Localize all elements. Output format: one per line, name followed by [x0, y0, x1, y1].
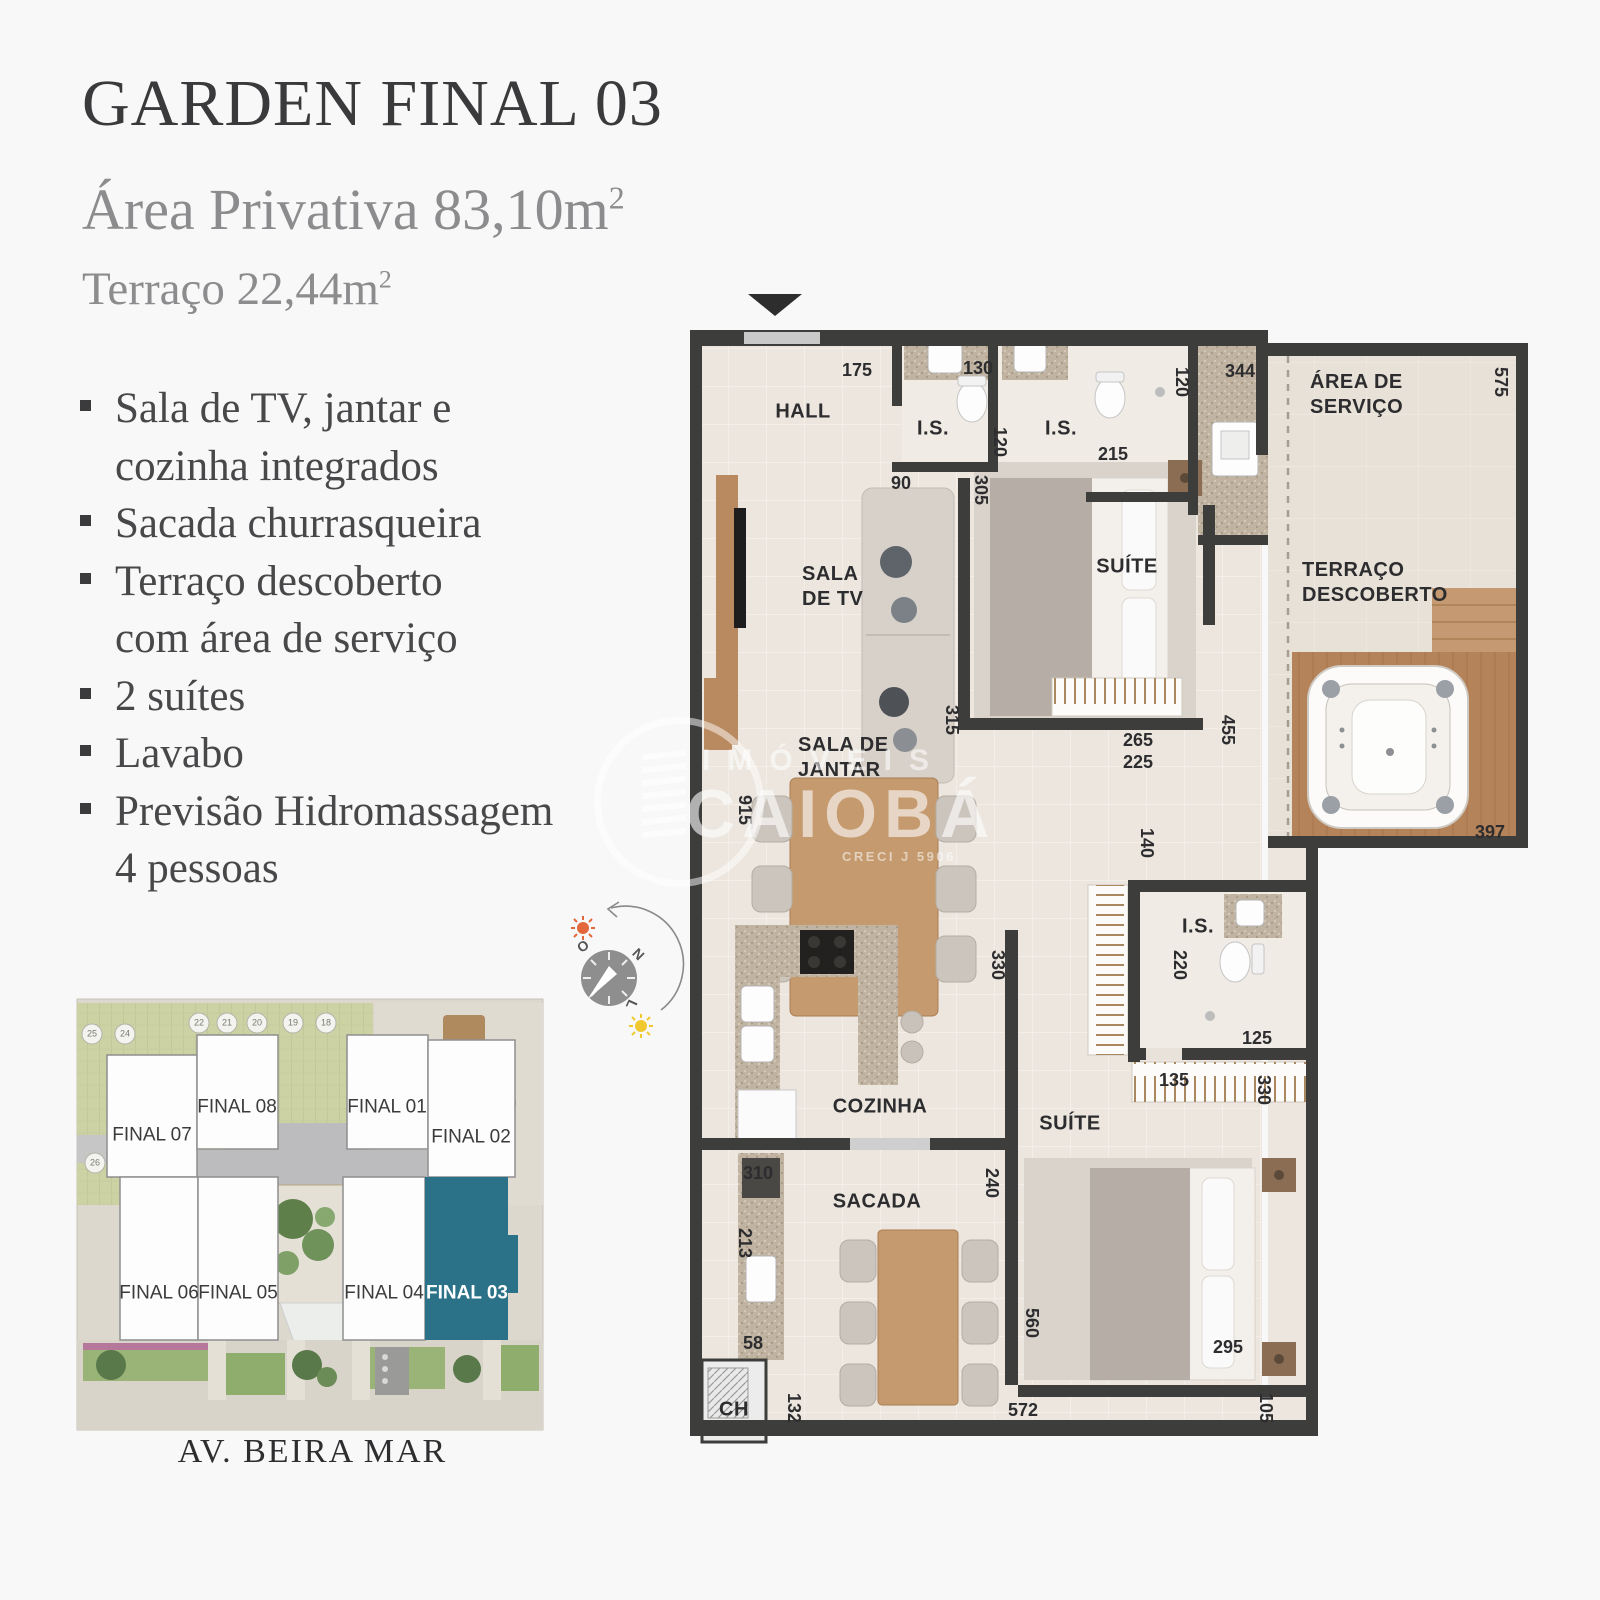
room-label-is1: I.S. — [917, 418, 949, 441]
parking-spot: 24 — [115, 1024, 136, 1045]
dim-label: 330 — [1255, 1075, 1273, 1105]
bullet-icon — [80, 745, 91, 756]
site-unit-final-06: FINAL 06 — [119, 1284, 199, 1303]
site-unit-final-05: FINAL 05 — [198, 1284, 278, 1303]
dim-label: 90 — [891, 474, 911, 492]
avenue-label: AV. BEIRA MAR — [75, 1435, 550, 1469]
dim-label: 125 — [1242, 1029, 1272, 1047]
sunset-sun-icon — [571, 916, 595, 940]
feature-text: cozinha integrados — [115, 438, 439, 496]
feature-text: Sala de TV, jantar e — [115, 380, 451, 438]
feature-text: Previsão Hidromassagem — [115, 783, 553, 841]
feature-text: Sacada churrasqueira — [115, 495, 482, 553]
site-plan-drawing — [75, 995, 550, 1440]
dim-label: 175 — [842, 361, 872, 379]
bullet-icon — [80, 803, 91, 814]
dim-label: 135 — [1159, 1071, 1189, 1089]
floor-plan-drawing — [690, 290, 1535, 1455]
private-area-sup: 2 — [609, 181, 625, 216]
room-label-cozinha: COZINHA — [833, 1096, 928, 1119]
compass-west: O — [574, 936, 592, 955]
dim-label: 344 — [1225, 362, 1255, 380]
parking-spot: 20 — [247, 1013, 268, 1034]
site-unit-final-03: FINAL 03 — [426, 1284, 508, 1303]
page: GARDEN FINAL 03 Área Privativa 83,10m2 T… — [0, 0, 1600, 1600]
dim-label: 915 — [736, 795, 754, 825]
dim-label: 575 — [1492, 367, 1510, 397]
feature-text: Terraço descoberto — [115, 553, 443, 611]
sunrise-sun-icon — [629, 1014, 653, 1038]
feature-item: Terraço descoberto — [78, 553, 678, 611]
room-label-is2: I.S. — [1045, 418, 1077, 441]
dim-label: 560 — [1023, 1308, 1041, 1338]
feature-text: com área de serviço — [115, 610, 458, 668]
dim-label: 305 — [972, 475, 990, 505]
feature-item: Previsão Hidromassagem — [78, 783, 678, 841]
feature-list: Sala de TV, jantar e cozinha integrados … — [78, 380, 678, 898]
parking-spot: 18 — [316, 1013, 337, 1034]
site-unit-final-01: FINAL 01 — [347, 1098, 427, 1117]
bullet-icon — [80, 573, 91, 584]
page-title: GARDEN FINAL 03 — [82, 68, 663, 141]
dim-label: 120 — [1173, 367, 1191, 397]
dim-label: 455 — [1219, 715, 1237, 745]
dim-label: 295 — [1213, 1338, 1243, 1356]
feature-item-cont: com área de serviço — [78, 610, 678, 668]
dim-label: 240 — [983, 1168, 1001, 1198]
dim-label: 132 — [785, 1393, 803, 1423]
dim-label: 330 — [989, 950, 1007, 980]
room-label-suite1: SUÍTE — [1096, 556, 1157, 579]
parking-spot: 26 — [85, 1153, 106, 1174]
feature-item: Sala de TV, jantar e — [78, 380, 678, 438]
feature-text: 2 suítes — [115, 668, 245, 726]
dim-label: 315 — [943, 705, 961, 735]
dim-label: 58 — [743, 1334, 763, 1352]
parking-spot: 22 — [189, 1013, 210, 1034]
site-unit-final-08: FINAL 08 — [197, 1098, 277, 1117]
room-label-sacada: SACADA — [833, 1191, 922, 1214]
room-label-is3: I.S. — [1182, 916, 1214, 939]
dim-label: 265 — [1123, 731, 1153, 749]
dim-label: 310 — [743, 1164, 773, 1182]
bullet-icon — [80, 400, 91, 411]
dim-label: 220 — [1171, 950, 1189, 980]
room-label-sala-jantar: SALA DE JANTAR — [798, 733, 889, 783]
compass: O N L — [545, 880, 685, 1050]
terrace-area-value: Terraço 22,44m — [82, 263, 379, 315]
room-label-sala-tv: SALA DE TV — [802, 562, 863, 612]
dim-label: 140 — [1138, 828, 1156, 858]
terrace-area-sup: 2 — [379, 264, 392, 293]
site-unit-final-04: FINAL 04 — [344, 1284, 424, 1303]
compass-north: N — [629, 945, 647, 963]
site-unit-final-02: FINAL 02 — [431, 1128, 511, 1147]
room-label-hall: HALL — [775, 401, 830, 424]
dim-label: 105 — [1257, 1393, 1275, 1423]
dim-label: 397 — [1475, 823, 1505, 841]
bullet-icon — [80, 515, 91, 526]
private-area-text: Área Privativa 83,10m2 — [82, 176, 625, 243]
dim-label: 213 — [736, 1228, 754, 1258]
parking-spot: 21 — [217, 1013, 238, 1034]
feature-item: Sacada churrasqueira — [78, 495, 678, 553]
feature-item: 2 suítes — [78, 668, 678, 726]
site-unit-final-07: FINAL 07 — [112, 1126, 192, 1145]
parking-spot: 19 — [283, 1013, 304, 1034]
floor-plan: HALL I.S. I.S. ÁREA DE SERVIÇO SALA DE T… — [690, 310, 1535, 1450]
feature-text: 4 pessoas — [115, 840, 279, 898]
bullet-icon — [80, 688, 91, 699]
dim-label: 120 — [991, 427, 1009, 457]
dim-label: 130 — [963, 359, 993, 377]
site-plan: FINAL 07 FINAL 08 FINAL 01 FINAL 02 FINA… — [75, 995, 550, 1500]
feature-item-cont: cozinha integrados — [78, 438, 678, 496]
compass-drawing: O N L — [545, 880, 685, 1050]
dim-label: 572 — [1008, 1401, 1038, 1419]
feature-text: Lavabo — [115, 725, 244, 783]
dim-label: 215 — [1098, 445, 1128, 463]
room-label-terraco: TERRAÇO DESCOBERTO — [1302, 558, 1448, 608]
terrace-area-text: Terraço 22,44m2 — [82, 262, 392, 316]
feature-item: Lavabo — [78, 725, 678, 783]
room-label-area-servico: ÁREA DE SERVIÇO — [1310, 370, 1403, 420]
room-label-ch: CH — [719, 1399, 749, 1422]
dim-label: 225 — [1123, 753, 1153, 771]
room-label-suite2: SUÍTE — [1039, 1113, 1100, 1136]
parking-spot: 25 — [82, 1024, 103, 1045]
unit-final-03-shape — [425, 1177, 518, 1340]
private-area-value: Área Privativa 83,10m — [82, 177, 609, 242]
